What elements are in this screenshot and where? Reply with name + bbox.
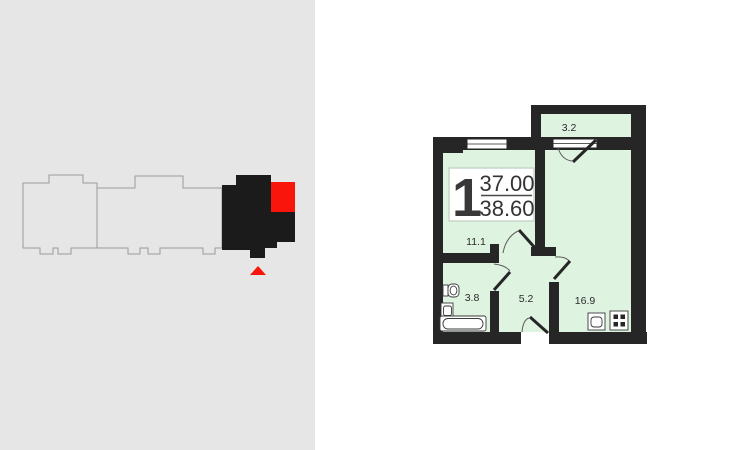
- kitchen-sink-icon: [588, 313, 605, 330]
- selected-apartment-highlight[interactable]: [271, 182, 295, 212]
- bathtub-icon: [440, 316, 486, 331]
- unit-info-box: 1 37.00 38.60: [449, 168, 535, 228]
- balcony-area-label: 3.2: [562, 122, 577, 134]
- building-section-1[interactable]: [23, 175, 97, 254]
- floor-plan: 3.2 11.1 3.8 5.2 16.9 1 37.00 38.60: [425, 90, 660, 360]
- unit-number: 1: [452, 168, 482, 228]
- bathroom-area-label: 3.8: [465, 292, 480, 304]
- unit-area-primary: 37.00: [479, 171, 534, 196]
- kitchen-area-label: 16.9: [575, 295, 596, 307]
- building-minimap-panel: [0, 0, 315, 450]
- entrance-opening: [521, 332, 549, 348]
- room-area-label: 11.1: [466, 236, 486, 248]
- hallway-area-label: 5.2: [519, 293, 534, 305]
- toilet-icon: [443, 284, 459, 297]
- sink-icon: [441, 303, 453, 317]
- entrance-marker-icon: [250, 266, 266, 275]
- stove-icon: [610, 311, 628, 330]
- unit-area-secondary: 38.60: [479, 196, 534, 221]
- building-minimap: [10, 165, 305, 285]
- building-section-2[interactable]: [97, 176, 222, 254]
